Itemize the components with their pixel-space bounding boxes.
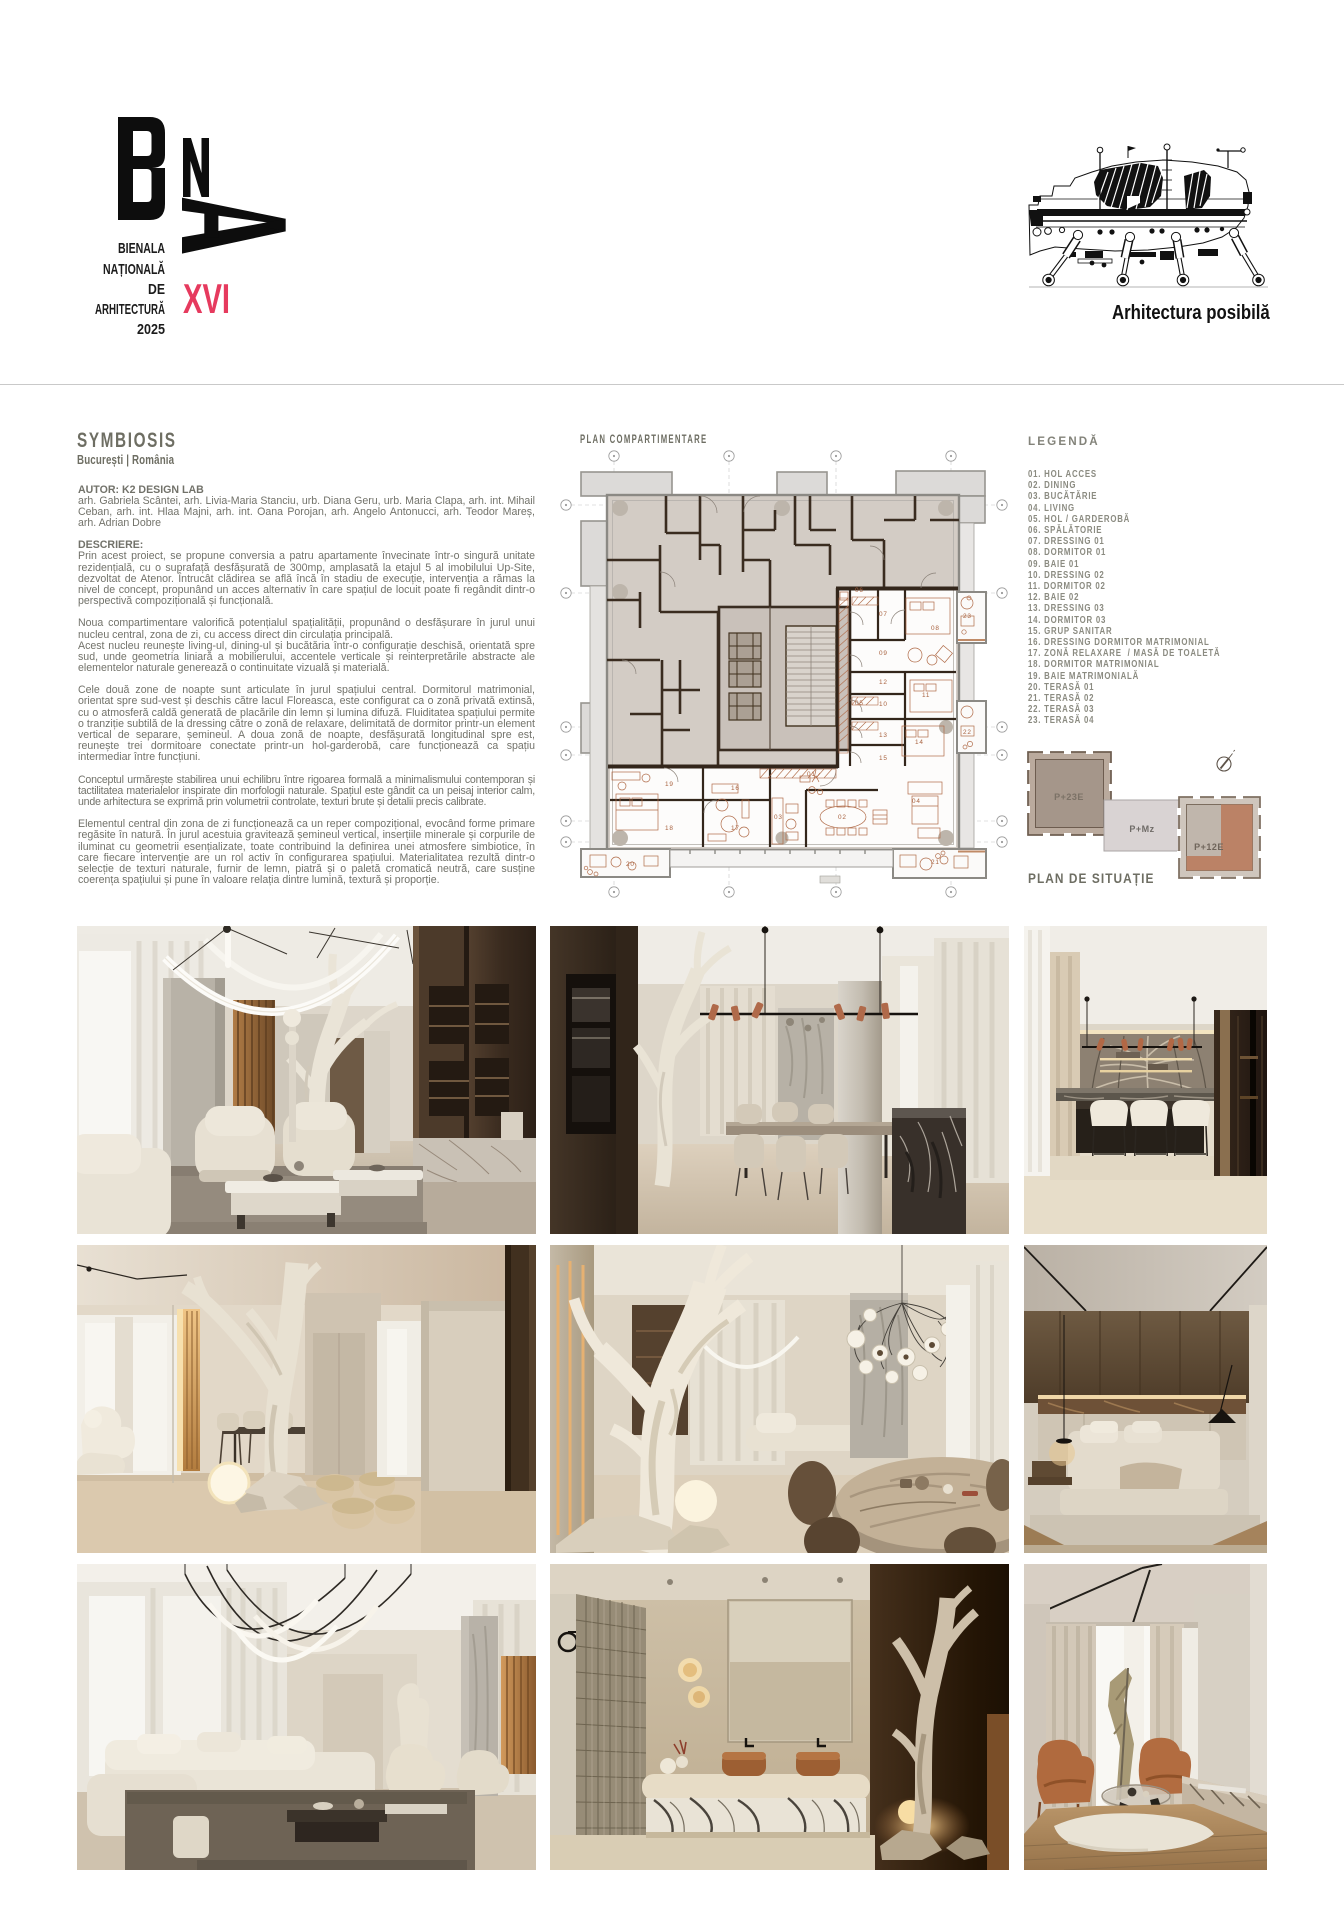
svg-text:14: 14 (915, 739, 924, 746)
svg-text:P+Mz: P+Mz (1129, 824, 1154, 834)
svg-text:P+12E: P+12E (1194, 842, 1224, 852)
svg-text:12: 12 (879, 679, 888, 686)
svg-text:21: 21 (931, 859, 940, 866)
svg-text:03: 03 (774, 814, 783, 821)
svg-text:BIENALA: BIENALA (118, 240, 165, 257)
svg-text:09: 09 (879, 650, 888, 657)
svg-text:16: 16 (731, 785, 740, 792)
svg-text:DE: DE (148, 281, 165, 298)
svg-text:04: 04 (912, 798, 921, 805)
svg-text:19: 19 (665, 781, 674, 788)
svg-text:23: 23 (963, 613, 972, 620)
svg-text:13: 13 (879, 732, 888, 739)
svg-text:20: 20 (626, 861, 635, 868)
svg-text:08: 08 (931, 625, 940, 632)
svg-text:02: 02 (838, 814, 847, 821)
svg-text:ARHITECTURĂ: ARHITECTURĂ (95, 301, 165, 318)
svg-text:01: 01 (807, 771, 816, 778)
svg-text:18: 18 (665, 825, 674, 832)
svg-text:17: 17 (731, 825, 740, 832)
svg-text:22: 22 (963, 729, 972, 736)
svg-text:06: 06 (855, 587, 864, 594)
svg-text:2025: 2025 (137, 321, 165, 338)
svg-text:P+23E: P+23E (1054, 792, 1084, 802)
svg-text:XVI: XVI (183, 275, 230, 322)
svg-text:11: 11 (922, 692, 930, 699)
svg-text:05: 05 (855, 700, 864, 707)
svg-text:NAȚIONALĂ: NAȚIONALĂ (103, 261, 165, 278)
svg-text:15: 15 (879, 755, 888, 762)
svg-text:07: 07 (879, 611, 888, 618)
svg-text:10: 10 (879, 701, 888, 708)
